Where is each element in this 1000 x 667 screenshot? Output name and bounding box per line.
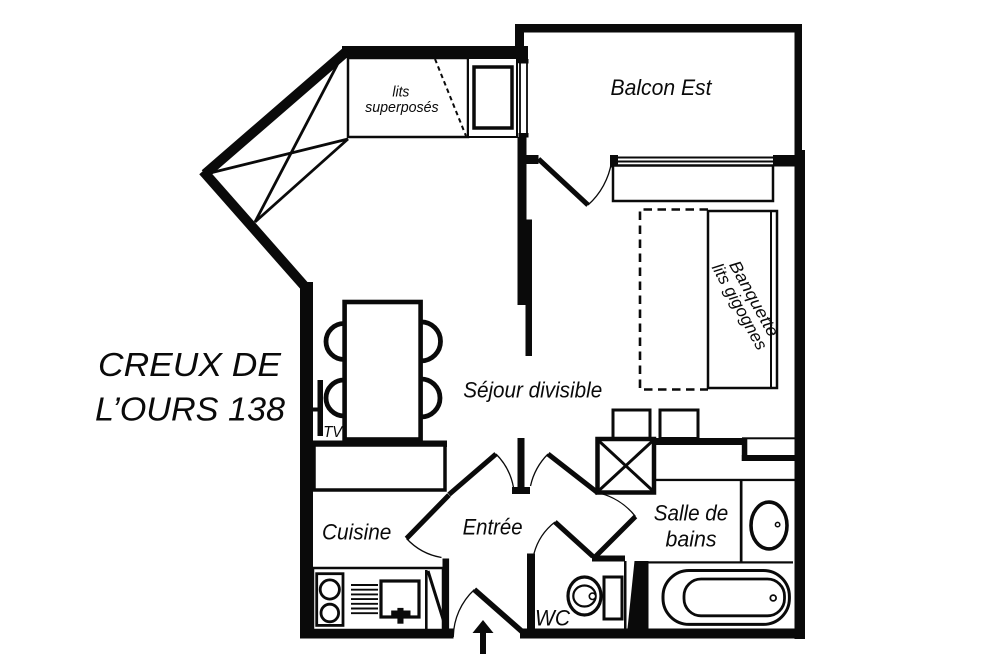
svg-text:superposés: superposés (365, 99, 439, 116)
svg-text:TV: TV (323, 424, 343, 441)
svg-text:WC: WC (535, 606, 570, 631)
svg-text:Salle de: Salle de (654, 501, 729, 526)
svg-text:Entrée: Entrée (463, 515, 523, 540)
svg-text:Cuisine: Cuisine (322, 520, 391, 545)
svg-text:L’OURS 138: L’OURS 138 (95, 391, 286, 428)
svg-text:lits: lits (392, 84, 409, 101)
svg-text:CREUX DE: CREUX DE (98, 346, 282, 383)
svg-text:Séjour divisible: Séjour divisible (463, 378, 602, 403)
svg-text:bains: bains (666, 526, 717, 551)
svg-text:Balcon Est: Balcon Est (611, 75, 713, 100)
